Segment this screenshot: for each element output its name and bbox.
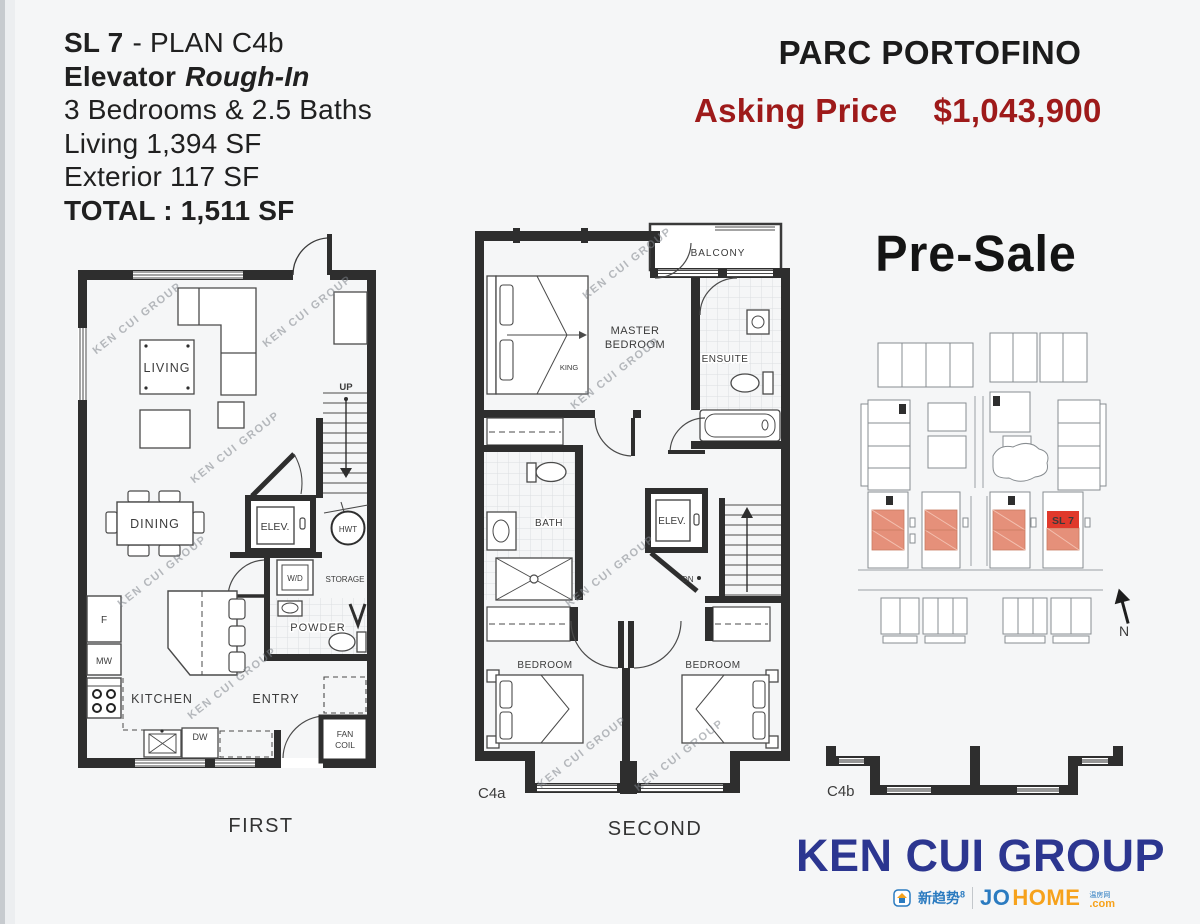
hwt-label: HWT [339,525,357,534]
shower [496,558,572,600]
fan-coil-closet [321,717,368,761]
stairs-down [725,505,781,595]
unit-feature: ElevatorRough-In [64,60,372,94]
stove [87,678,121,718]
elevator-handle-2 [694,514,699,525]
storage-label: STORAGE [326,575,365,584]
wall [264,654,376,661]
unit-living-area: Living 1,394 SF [64,127,372,161]
plan-code-c4a: C4a [478,785,506,802]
brand-name: KEN CUI GROUP [783,830,1178,882]
down-label: DN [682,575,694,584]
stair-wall-2 [719,498,725,598]
powder-label: POWDER [290,622,346,634]
wall [484,410,595,418]
wall [230,552,322,558]
coil-label: COIL [335,740,355,750]
unit-title: SL 7- PLAN C4b [64,26,372,60]
fridge-label: F [101,615,107,626]
cn-logo-sup: 8 [960,889,965,899]
living-label: LIVING [144,361,191,375]
wall [575,452,583,600]
elevator-handle [300,518,305,529]
fan-coil-dashed [324,677,366,713]
hall-door-leaf [668,450,705,454]
johome-jo: JO [980,885,1010,911]
scan-edge-light [5,0,15,924]
kitchen-sink [144,729,181,757]
unit-exterior-area: Exterior 117 SF [64,160,372,194]
sl7-unit-label: SL 7 [1052,515,1074,527]
bath-toilet-tank [527,463,536,482]
unit-total-area: TOTAL : 1,511 SF [64,194,372,228]
balcony-label: BALCONY [691,248,746,259]
asking-price: Asking Price $1,043,900 [694,92,1184,130]
ensuite-label: ENSUITE [702,354,749,365]
king-label: KING [560,363,579,372]
toilet-tank [357,632,366,652]
elevator-lobby-door [252,454,294,496]
stair-arrow-2 [741,507,753,592]
site-plan: SL 7 [853,328,1108,650]
master-label-1: MASTER [611,325,660,337]
wall [691,441,781,449]
entry-label: ENTRY [252,692,299,706]
bathtub [700,410,780,441]
stairs-up [323,393,367,493]
asking-price-value: $1,043,900 [934,92,1102,130]
counter-dashed-3 [220,731,272,757]
front-door-arc [293,238,327,275]
bedroom-door-arc-left [571,621,618,668]
second-floor-windows [658,270,773,277]
wall-stub [274,730,281,758]
wall [705,596,781,603]
bar-stools [229,599,245,672]
ensuite-sink [747,310,769,334]
stair-wall [316,418,323,498]
ensuite-toilet-tank [763,372,773,394]
dishwasher-label: DW [193,732,208,742]
elevator-label-2: ELEV. [658,516,685,527]
bedroom-closet-right [713,607,770,641]
second-floor-caption: SECOND [580,818,730,841]
cn-logo-text: 新趋势8 [918,888,965,908]
stair-arrow [340,397,352,478]
second-floor-plan: BALCONY KING MASTER BEDROOM ENSUITE [475,220,790,802]
up-label: UP [339,382,353,393]
bedroom-door-arc-right [634,621,681,668]
unit-info: SL 7- PLAN C4b ElevatorRough-In 3 Bedroo… [64,26,372,227]
c4b-shape [826,746,1123,795]
footer-logos: 新趋势8 JOHOME 温房网 .com [893,885,1115,911]
johome-suffix: 温房网 .com [1089,888,1115,908]
unit-beds: 3 Bedrooms & 2.5 Baths [64,93,372,127]
elevator-lobby-door-2 [651,553,697,591]
wall-stub [705,607,713,641]
bath-toilet [536,463,566,482]
wall [264,552,270,660]
lobby-door-arc [294,454,302,494]
bedroom-door-leaf-right [628,621,634,668]
elevator-label: ELEV. [261,521,290,533]
ensuite-toilet [731,374,759,392]
north-arrow: N [1106,586,1142,638]
bath-sink [487,512,516,550]
johome-com: .com [1089,900,1115,908]
house-icon [893,889,911,907]
c4b-section: C4b [823,738,1125,800]
north-arrow-glyph [1111,587,1136,626]
powder-toilet [329,633,355,651]
bedroom-label-left: BEDROOM [517,660,572,671]
dining-label: DINING [130,517,180,531]
microwave-label: MW [96,656,112,666]
bedroom-door-leaf-left [618,621,624,668]
presale-banner: Pre-Sale [858,224,1094,283]
washer-dryer-label: W/D [287,574,303,583]
fan-label: FAN [337,729,354,739]
party-wall [622,668,630,761]
johome-home: HOME [1012,885,1080,911]
bath-label: BATH [535,518,563,529]
site-pond [993,443,1048,481]
bed-left [487,670,583,748]
kitchen-label: KITCHEN [131,692,193,706]
master-door-arc [595,418,631,456]
dn-dot [697,576,701,580]
bedroom-label-right: BEDROOM [685,660,740,671]
asking-price-label: Asking Price [694,92,898,130]
north-label: N [1119,623,1129,638]
logo-divider [972,887,973,909]
project-name: PARC PORTOFINO [740,34,1120,72]
master-door-leaf [631,418,635,456]
wall [691,278,700,410]
wall [484,445,583,452]
wall [633,410,641,418]
plan-code-c4b: C4b [827,783,855,800]
coat-closet [334,292,367,344]
first-floor-caption: FIRST [186,815,336,838]
